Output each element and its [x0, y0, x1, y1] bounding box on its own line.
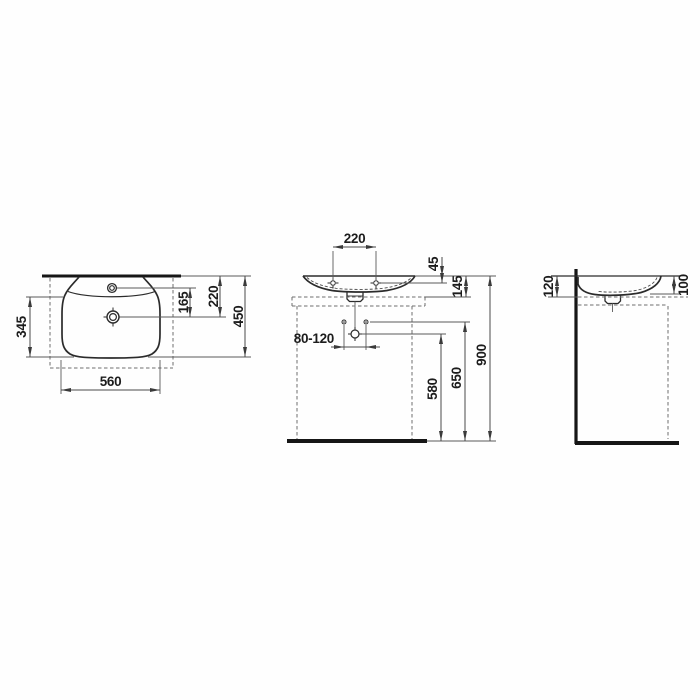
dim-rim-to-tap-deck: 45	[426, 256, 441, 271]
dim-fixing-spacing: 80-120	[294, 331, 334, 346]
dim-back-to-drain: 220	[206, 286, 221, 308]
dim-width: 560	[100, 374, 122, 389]
technical-drawing: 345 165 220 450 560	[0, 0, 700, 700]
fixing-hole-right	[364, 320, 368, 324]
dim-rim-to-bowl-bottom: 100	[676, 274, 691, 296]
front-view: 220 45 145 80-120 580 650 900	[287, 231, 496, 441]
top-view: 345 165 220 450 560	[14, 276, 251, 394]
extension-lines-front-view	[333, 251, 496, 350]
counter-pedestal-dashed	[578, 297, 688, 439]
cabinet-outline-dashed	[297, 306, 412, 439]
bowl-outer-profile	[303, 276, 415, 292]
dim-floor-to-fixing: 650	[449, 367, 464, 389]
dim-floor-to-drain: 580	[425, 378, 440, 400]
washbasin-technical-drawing-page: 345 165 220 450 560	[0, 0, 700, 700]
dim-floor-to-rim: 900	[474, 344, 489, 366]
dim-bowl-depth: 345	[14, 315, 29, 337]
dim-rim-to-underside: 145	[450, 275, 465, 297]
dim-tap-spacing: 220	[344, 231, 366, 246]
drain-fitting-side	[605, 296, 621, 304]
drain-connection	[348, 327, 362, 341]
dim-faucet-to-drain: 165	[176, 291, 191, 313]
side-view: 120 100	[541, 269, 691, 444]
dim-rim-to-underside-side: 120	[541, 276, 556, 298]
faucet-hole	[108, 284, 117, 293]
dim-overall-depth: 450	[231, 306, 246, 328]
drain-hole	[104, 308, 123, 327]
fixing-hole-left	[342, 320, 346, 324]
basin-outline	[62, 277, 160, 358]
